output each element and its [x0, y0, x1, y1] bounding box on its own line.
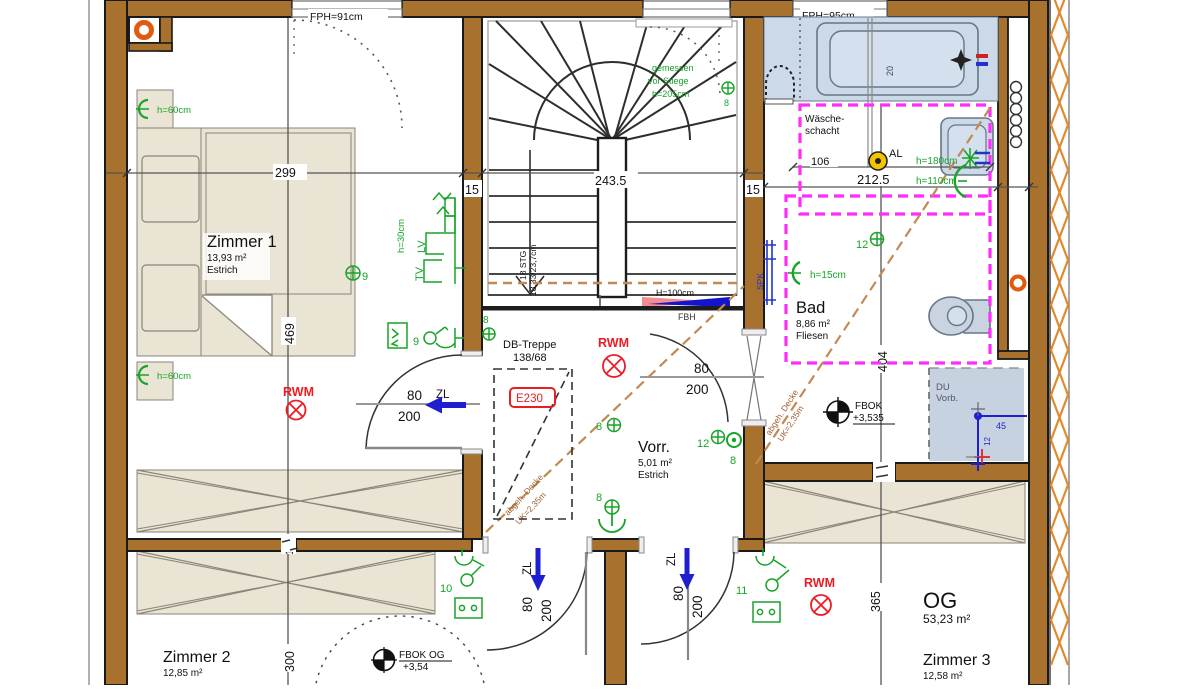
svg-text:Zimmer 3: Zimmer 3: [923, 652, 991, 669]
svg-text:gemessen: gemessen: [652, 63, 694, 73]
svg-text:12,85 m²: 12,85 m²: [163, 668, 203, 679]
svg-text:h=110cm: h=110cm: [916, 176, 957, 187]
svg-text:469: 469: [283, 323, 297, 344]
svg-text:h=60cm: h=60cm: [157, 371, 191, 382]
svg-text:DB-Treppe: DB-Treppe: [503, 339, 556, 351]
svg-text:Wäsche-: Wäsche-: [805, 114, 844, 125]
svg-text:+3,535: +3,535: [853, 413, 884, 424]
svg-text:RWM: RWM: [804, 576, 835, 590]
svg-text:FPH=91cm: FPH=91cm: [310, 11, 363, 23]
svg-text:+3,54: +3,54: [403, 662, 429, 673]
svg-text:53,23 m²: 53,23 m²: [923, 612, 970, 626]
svg-text:h=30cm: h=30cm: [396, 219, 407, 253]
svg-text:FBOK: FBOK: [855, 401, 883, 412]
svg-text:9: 9: [362, 271, 368, 283]
svg-text:10: 10: [440, 583, 452, 595]
svg-text:12: 12: [983, 437, 992, 446]
svg-text:h=205cm: h=205cm: [652, 89, 689, 99]
svg-text:Estrich: Estrich: [638, 470, 669, 481]
svg-text:h=15cm: h=15cm: [810, 270, 846, 281]
svg-text:8: 8: [483, 315, 489, 326]
svg-text:299: 299: [275, 166, 296, 180]
svg-text:300: 300: [283, 651, 297, 672]
svg-text:80: 80: [694, 361, 709, 376]
svg-text:TV: TV: [414, 266, 426, 281]
svg-text:200: 200: [398, 409, 421, 424]
svg-text:RWM: RWM: [283, 385, 314, 399]
svg-text:DU: DU: [936, 382, 950, 393]
svg-text:vor Stiege: vor Stiege: [648, 76, 689, 86]
svg-text:18 STG: 18 STG: [518, 251, 528, 280]
svg-text:106: 106: [811, 156, 829, 168]
svg-text:ZL: ZL: [666, 552, 678, 566]
svg-text:8: 8: [730, 455, 736, 467]
svg-text:h=60cm: h=60cm: [157, 105, 191, 116]
svg-text:SPK: SPK: [755, 273, 765, 290]
svg-text:12: 12: [856, 239, 868, 251]
svg-text:RWM: RWM: [598, 336, 629, 350]
svg-text:9: 9: [413, 336, 419, 348]
svg-text:AL: AL: [889, 148, 902, 160]
svg-text:8: 8: [596, 421, 602, 433]
svg-text:8: 8: [596, 492, 602, 504]
svg-text:138/68: 138/68: [513, 352, 547, 364]
svg-text:12: 12: [697, 438, 709, 450]
svg-text:5,01 m²: 5,01 m²: [638, 458, 673, 469]
svg-text:Fliesen: Fliesen: [796, 331, 828, 342]
svg-text:20: 20: [885, 66, 895, 76]
svg-text:365: 365: [869, 591, 883, 612]
svg-text:12,58 m²: 12,58 m²: [923, 671, 963, 682]
svg-text:E230: E230: [516, 393, 543, 405]
svg-text:200: 200: [690, 595, 705, 618]
svg-text:H=100cm: H=100cm: [656, 288, 694, 298]
svg-text:Estrich: Estrich: [207, 265, 238, 276]
svg-text:Vorb.: Vorb.: [936, 393, 958, 404]
svg-text:h=180cm: h=180cm: [916, 156, 957, 167]
svg-text:8: 8: [724, 98, 729, 108]
svg-text:13,93 m²: 13,93 m²: [207, 253, 247, 264]
svg-text:243.5: 243.5: [595, 174, 626, 188]
svg-text:212.5: 212.5: [857, 172, 890, 187]
svg-text:FBH: FBH: [678, 312, 696, 322]
svg-text:200: 200: [539, 599, 554, 622]
svg-text:LV: LV: [416, 240, 428, 253]
svg-text:OG: OG: [923, 588, 957, 613]
svg-text:Bad: Bad: [796, 299, 825, 317]
svg-text:schacht: schacht: [805, 126, 840, 137]
svg-text:80: 80: [520, 597, 535, 612]
svg-text:Zimmer 2: Zimmer 2: [163, 649, 231, 666]
svg-text:18,33/23,7cm: 18,33/23,7cm: [528, 244, 538, 296]
svg-text:8,86 m²: 8,86 m²: [796, 319, 831, 330]
svg-text:FBOK OG: FBOK OG: [399, 650, 445, 661]
svg-text:11: 11: [736, 585, 747, 597]
svg-text:15: 15: [746, 183, 760, 197]
svg-text:Zimmer 1: Zimmer 1: [207, 233, 277, 251]
svg-text:45: 45: [996, 421, 1006, 431]
svg-text:15: 15: [465, 183, 479, 197]
svg-text:200: 200: [686, 382, 709, 397]
svg-text:80: 80: [671, 586, 686, 601]
svg-text:ZL: ZL: [522, 561, 534, 575]
svg-text:Vorr.: Vorr.: [638, 439, 670, 456]
svg-text:80: 80: [407, 388, 422, 403]
